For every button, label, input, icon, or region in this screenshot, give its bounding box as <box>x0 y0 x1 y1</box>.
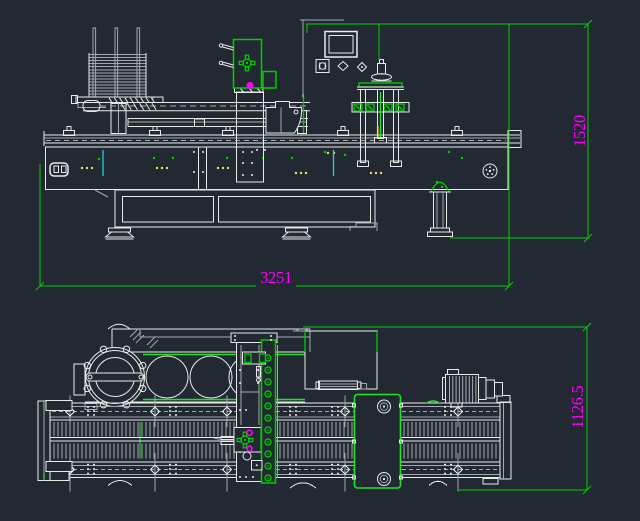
cad-drawing-viewport: 3251 1520 1126.5 <box>0 0 640 521</box>
side-panel <box>293 329 378 390</box>
control-cabinet <box>300 20 367 98</box>
rotary-feeder-flange <box>84 329 158 408</box>
transfer-plate <box>353 395 403 489</box>
dim-text-front-width: 3251 <box>260 268 292 287</box>
valve-assembly <box>352 60 409 167</box>
drive-motor <box>426 370 503 408</box>
dim-text-front-height: 1520 <box>570 115 589 147</box>
drive-bracket <box>266 95 304 133</box>
plan-view <box>38 324 511 491</box>
support-leg <box>428 182 453 236</box>
switch-icon <box>316 60 329 73</box>
machine-feet <box>106 228 311 239</box>
base-frame <box>115 190 377 231</box>
cad-canvas: 3251 1520 1126.5 <box>0 0 640 521</box>
dim-text-plan-depth: 1126.5 <box>568 385 587 428</box>
gripper-head <box>219 40 276 90</box>
bearing-detail <box>483 164 497 178</box>
button-diamond-icon <box>338 62 348 71</box>
front-view <box>44 20 521 239</box>
carton-magazine <box>72 28 164 134</box>
plan-housing <box>108 324 310 352</box>
magenta-marker-dot <box>247 82 254 89</box>
